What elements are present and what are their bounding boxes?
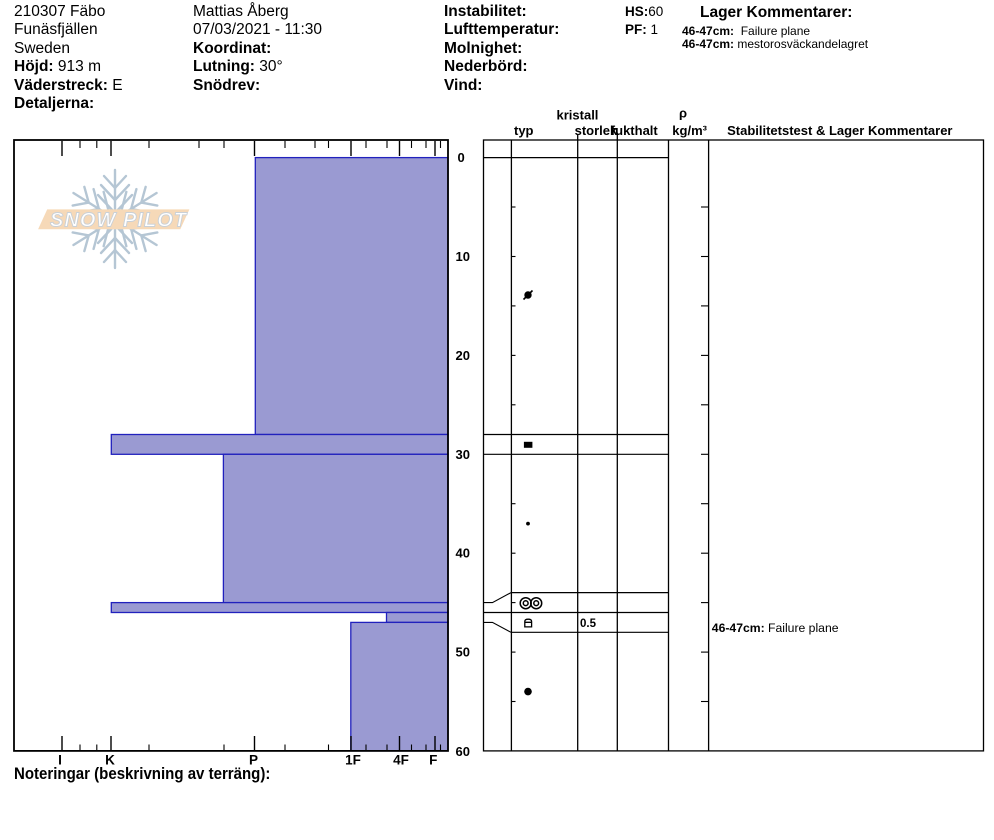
- svg-text:I: I: [58, 753, 62, 768]
- svg-text:SNOW PILOT: SNOW PILOT: [50, 210, 188, 232]
- svg-text:10: 10: [456, 249, 470, 264]
- svg-text:30: 30: [456, 447, 470, 462]
- svg-text:Stabilitetstest & Lager Kommen: Stabilitetstest & Lager Kommentarer: [727, 123, 952, 138]
- svg-text:kg/m³: kg/m³: [672, 123, 707, 138]
- svg-text:F: F: [429, 753, 437, 768]
- svg-text:20: 20: [456, 348, 470, 363]
- svg-text:P: P: [249, 753, 258, 768]
- svg-text:1F: 1F: [345, 753, 361, 768]
- svg-text:60: 60: [456, 744, 470, 759]
- svg-text:K: K: [105, 753, 115, 768]
- svg-text:typ: typ: [514, 123, 534, 138]
- svg-text:ρ: ρ: [679, 106, 687, 121]
- svg-text:50: 50: [456, 645, 470, 660]
- svg-text:0.5: 0.5: [580, 618, 597, 630]
- svg-text:kristall: kristall: [557, 107, 599, 122]
- svg-text:46-47cm: Failure plane: 46-47cm: Failure plane: [712, 621, 839, 635]
- svg-text:40: 40: [456, 546, 470, 561]
- svg-text:4F: 4F: [393, 753, 409, 768]
- svg-text:0: 0: [458, 150, 465, 165]
